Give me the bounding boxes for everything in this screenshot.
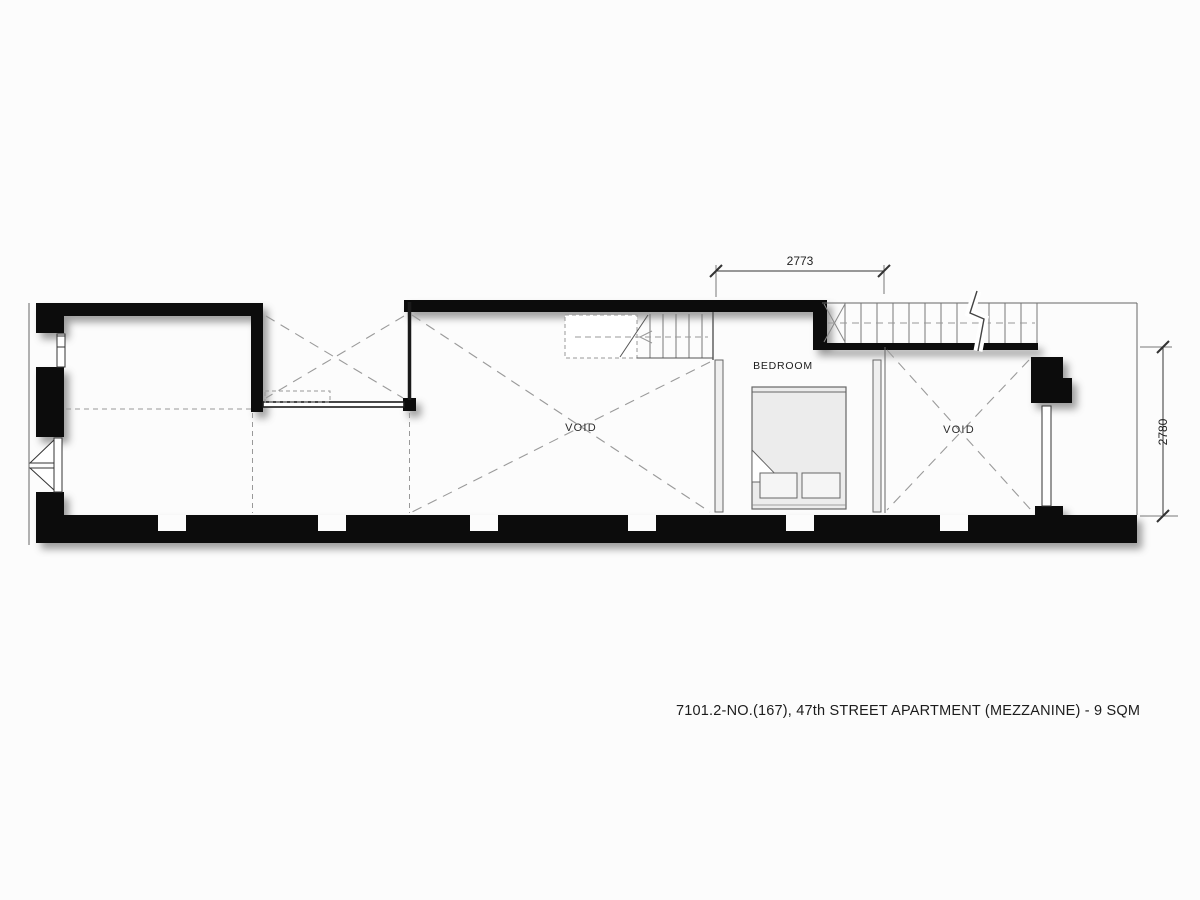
inner-stair-treads	[650, 314, 702, 358]
dimension-top-2773	[710, 265, 890, 297]
entry-railing	[263, 402, 404, 407]
bed	[752, 387, 846, 509]
void-label-right: VOID	[928, 424, 990, 436]
wall-under-stair	[824, 343, 1038, 350]
wall-stair-connector	[813, 300, 827, 350]
window-lower-casement-top	[30, 440, 54, 463]
bedroom-fixtures	[715, 360, 881, 512]
floor-plan-linework	[0, 0, 1200, 900]
bed-pillow-left	[760, 473, 797, 498]
wall-left-a	[36, 303, 64, 333]
upper-stair	[824, 291, 1037, 351]
stair-break-halo	[970, 291, 984, 351]
floor-plan: 2773 2780 BEDROOM VOID VOID 7101.2-NO.(1…	[0, 0, 1200, 900]
wall-right-chunk	[1031, 357, 1063, 403]
wall-top-left	[36, 303, 263, 316]
window-lower-glazing	[54, 438, 62, 492]
wall-top-middle	[404, 300, 824, 312]
wall-right-chunk-step	[1063, 378, 1072, 403]
dimension-right-value: 2780	[1156, 402, 1170, 462]
void-label-left: VOID	[550, 422, 612, 434]
wall-room1-right	[251, 303, 263, 412]
wall-bottom	[36, 515, 1137, 543]
inner-stair	[565, 312, 713, 360]
bed-pillow-right	[802, 473, 840, 498]
drawing-title: 7101.2-NO.(167), 47th STREET APARTMENT (…	[676, 703, 1136, 719]
bedroom-railing-right	[873, 360, 881, 512]
wall-right-window-cap	[1035, 506, 1063, 516]
projection-dashed-lines	[66, 409, 410, 513]
window-lower-casement-bottom	[30, 468, 54, 490]
shelf-dashed	[265, 391, 330, 402]
bedroom-label: BEDROOM	[748, 360, 818, 372]
partitions	[263, 302, 410, 407]
bedroom-railing-left	[715, 360, 723, 512]
window-right	[1042, 406, 1051, 506]
dimension-top-value: 2773	[770, 254, 830, 268]
wall-left-b	[36, 367, 64, 437]
window-upper-latch	[57, 336, 65, 347]
